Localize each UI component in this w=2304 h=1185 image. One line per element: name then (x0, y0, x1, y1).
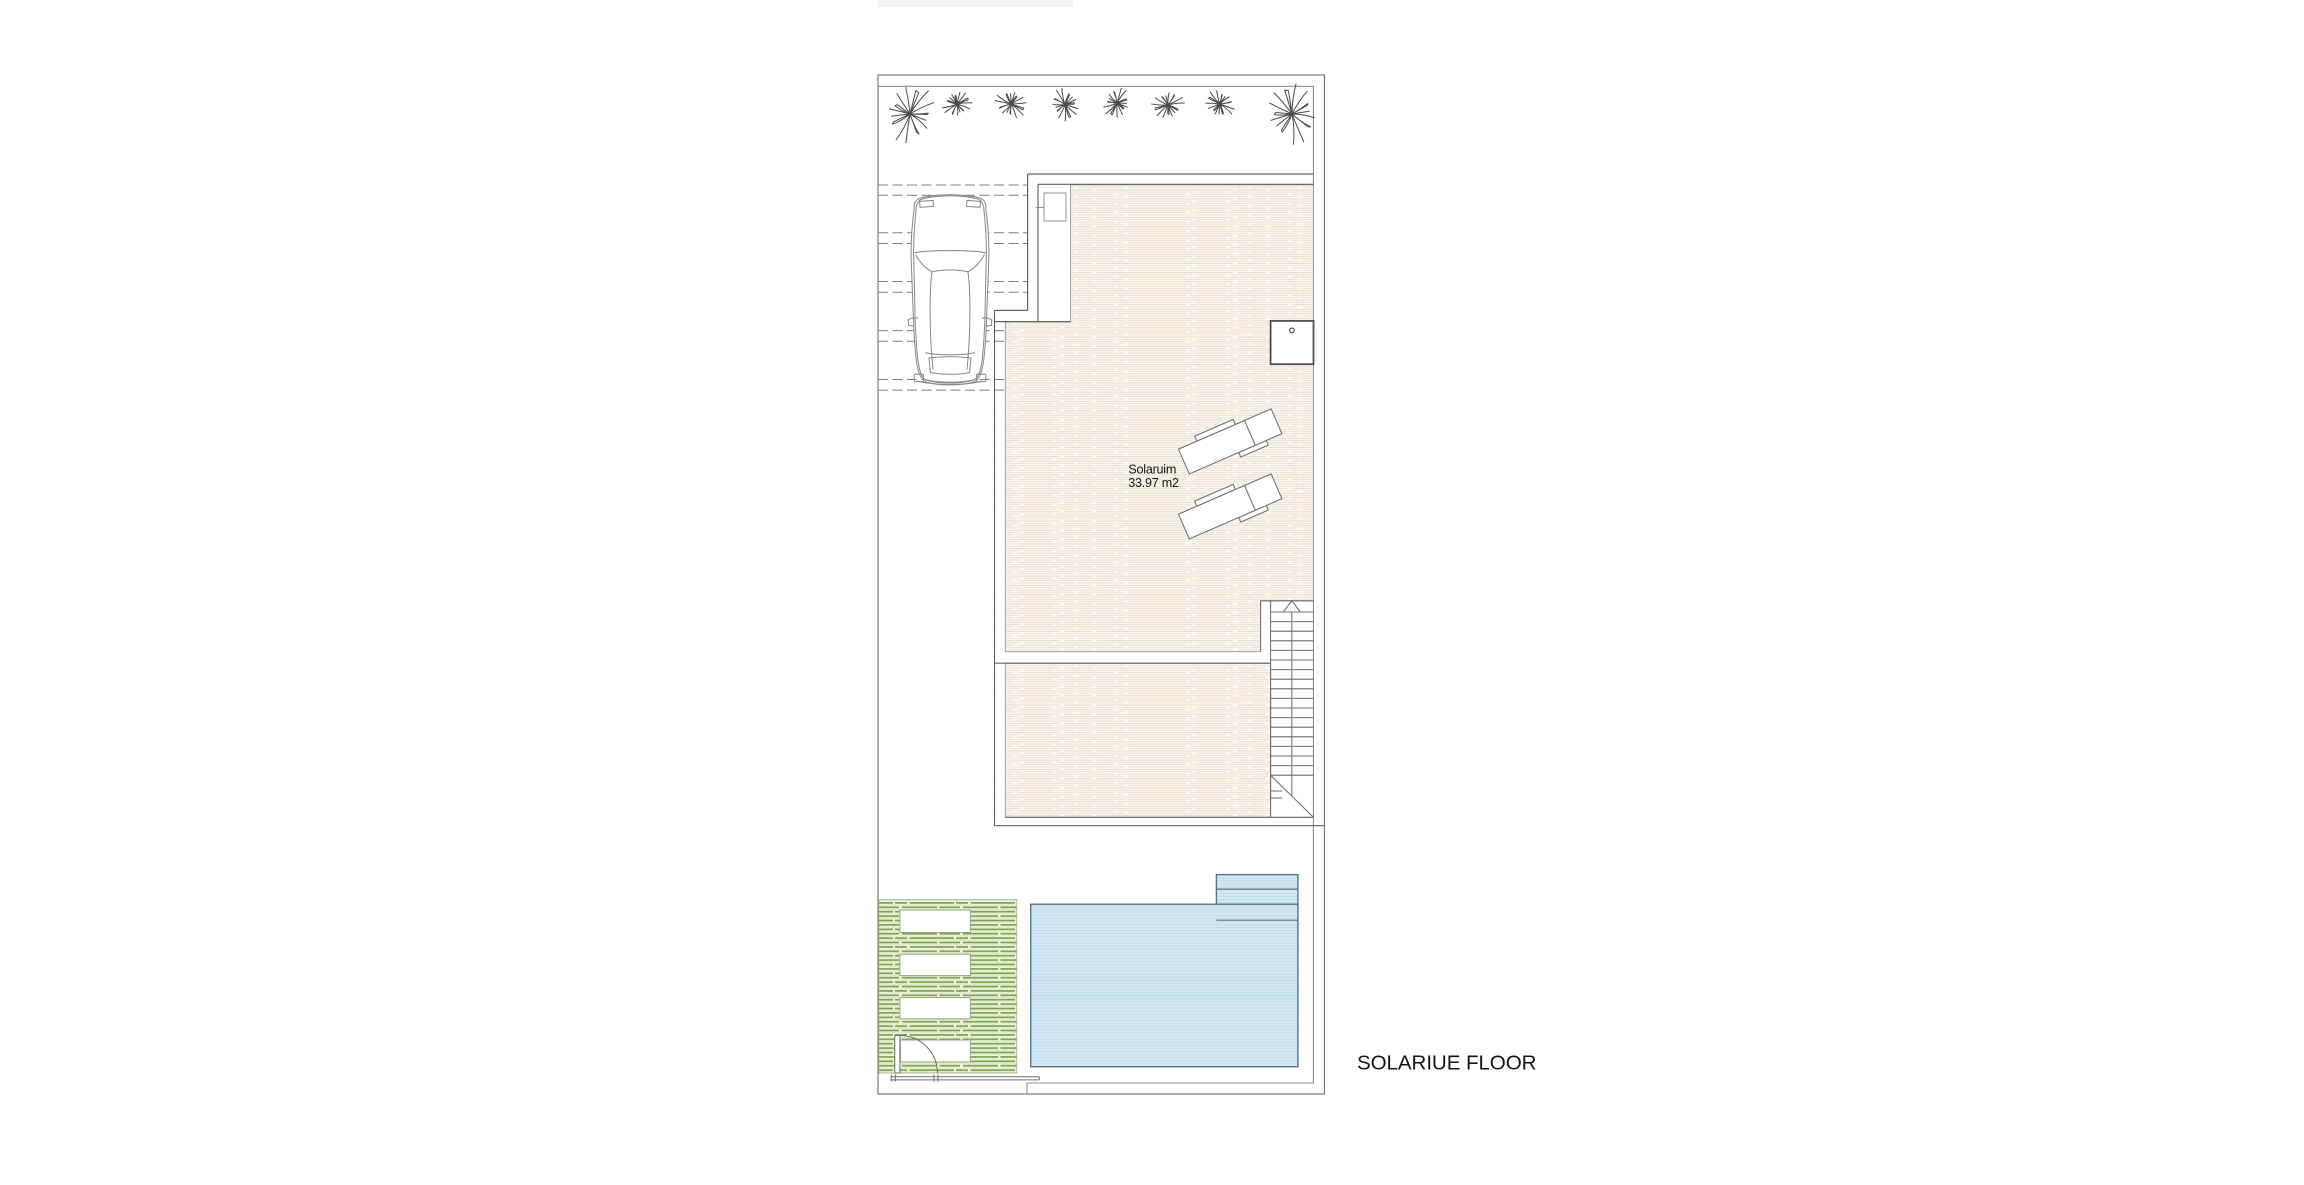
svg-text:Solaruim: Solaruim (1128, 462, 1176, 476)
svg-text:SOLARIUE FLOOR: SOLARIUE FLOOR (1357, 1051, 1536, 1074)
svg-text:33.97 m2: 33.97 m2 (1128, 476, 1179, 490)
